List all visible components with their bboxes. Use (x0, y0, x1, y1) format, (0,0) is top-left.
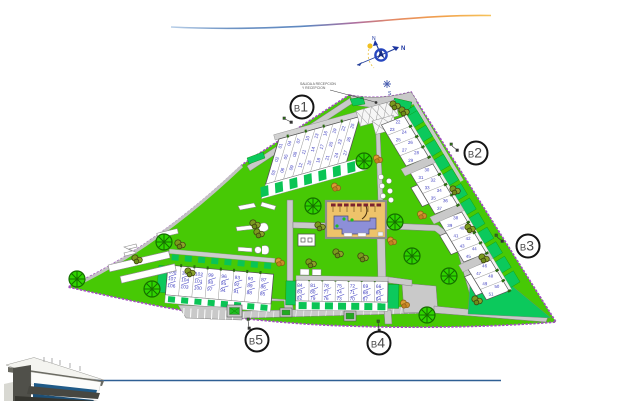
svg-text:34: 34 (437, 188, 443, 193)
svg-text:103: 103 (180, 284, 189, 291)
svg-text:94: 94 (220, 288, 226, 294)
svg-text:78: 78 (323, 283, 329, 289)
svg-text:32: 32 (431, 178, 437, 183)
svg-text:27: 27 (402, 147, 408, 152)
svg-text:79: 79 (310, 296, 316, 302)
svg-text:73: 73 (336, 296, 342, 302)
svg-text:46: 46 (482, 263, 488, 268)
svg-text:68: 68 (363, 290, 369, 296)
svg-text:106: 106 (167, 283, 176, 290)
svg-text:22: 22 (396, 119, 402, 124)
svg-text:70: 70 (349, 296, 355, 302)
svg-text:89: 89 (247, 283, 253, 289)
svg-text:80: 80 (310, 289, 316, 295)
svg-text:99: 99 (208, 273, 214, 279)
svg-text:74: 74 (336, 290, 342, 296)
svg-text:72: 72 (350, 284, 356, 290)
svg-text:93: 93 (234, 275, 240, 281)
svg-text:84: 84 (297, 283, 303, 289)
svg-text:38: 38 (453, 215, 459, 220)
svg-text:24: 24 (402, 130, 408, 135)
svg-text:76: 76 (323, 296, 329, 302)
svg-text:85: 85 (260, 291, 266, 297)
svg-text:90: 90 (248, 276, 254, 282)
svg-text:87: 87 (261, 277, 267, 283)
svg-text:65: 65 (376, 290, 382, 296)
svg-text:92: 92 (234, 282, 240, 288)
svg-text:48: 48 (488, 274, 494, 279)
svg-text:36: 36 (443, 198, 449, 203)
svg-text:75: 75 (336, 283, 342, 289)
svg-text:97: 97 (207, 287, 213, 293)
svg-text:41: 41 (453, 233, 459, 238)
svg-text:47: 47 (476, 271, 482, 276)
svg-text:N: N (372, 36, 376, 42)
svg-text:101: 101 (194, 278, 203, 285)
svg-text:26: 26 (408, 140, 414, 145)
svg-text:77: 77 (323, 290, 329, 296)
svg-text:69: 69 (363, 284, 369, 290)
svg-text:67: 67 (363, 297, 369, 303)
svg-text:29: 29 (408, 158, 414, 163)
svg-text:95: 95 (221, 281, 227, 287)
svg-text:51: 51 (489, 291, 495, 296)
svg-text:N: N (401, 46, 405, 52)
svg-text:49: 49 (482, 281, 488, 286)
svg-text:98: 98 (207, 280, 213, 286)
svg-text:50: 50 (494, 284, 500, 289)
svg-text:23: 23 (390, 127, 396, 132)
svg-text:42: 42 (466, 236, 472, 241)
svg-text:30: 30 (424, 167, 430, 172)
svg-text:39: 39 (447, 223, 453, 228)
svg-text:43: 43 (460, 243, 466, 248)
svg-text:96: 96 (221, 274, 227, 280)
svg-text:71: 71 (350, 290, 356, 296)
svg-text:81: 81 (310, 283, 316, 289)
svg-text:44: 44 (472, 246, 478, 251)
svg-text:37: 37 (437, 206, 443, 211)
svg-text:40: 40 (459, 226, 465, 231)
svg-text:86: 86 (260, 284, 266, 290)
svg-text:28: 28 (414, 150, 420, 155)
svg-text:88: 88 (246, 290, 252, 296)
svg-text:64: 64 (376, 297, 382, 303)
svg-text:100: 100 (194, 285, 203, 292)
svg-text:25: 25 (396, 137, 402, 142)
svg-text:104: 104 (181, 277, 190, 284)
svg-text:35: 35 (431, 195, 437, 200)
svg-text:Y RECEPCION: Y RECEPCION (302, 86, 326, 90)
svg-text:31: 31 (418, 175, 424, 180)
svg-text:102: 102 (195, 271, 204, 278)
svg-text:83: 83 (297, 289, 303, 295)
svg-text:66: 66 (376, 284, 382, 290)
svg-text:107: 107 (168, 276, 177, 283)
svg-text:33: 33 (425, 185, 431, 190)
svg-text:91: 91 (233, 289, 239, 295)
svg-text:45: 45 (466, 254, 472, 259)
svg-text:82: 82 (297, 296, 303, 302)
